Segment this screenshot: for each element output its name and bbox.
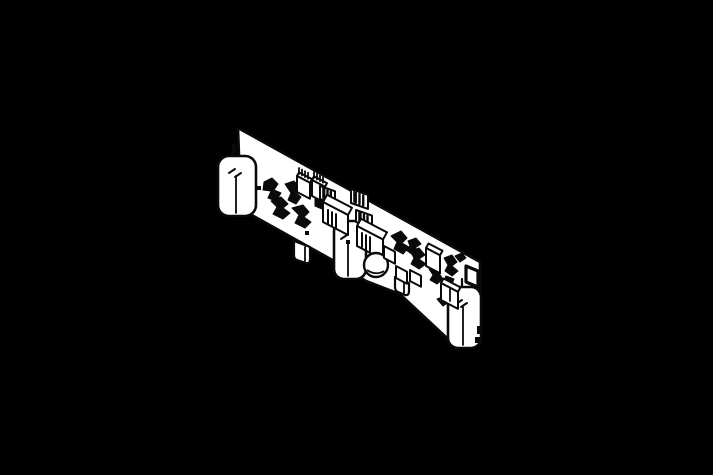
capacitor-cylinder	[218, 156, 256, 216]
edge-hole	[232, 144, 236, 153]
solder-dot	[305, 231, 309, 235]
frame-component	[466, 266, 478, 287]
edge-slot	[477, 326, 482, 334]
pcb-line-drawing	[0, 0, 713, 475]
screenshot-root	[0, 0, 713, 475]
solder-dot	[346, 240, 350, 244]
edge-slot	[475, 337, 482, 343]
solder-dot	[257, 186, 261, 190]
